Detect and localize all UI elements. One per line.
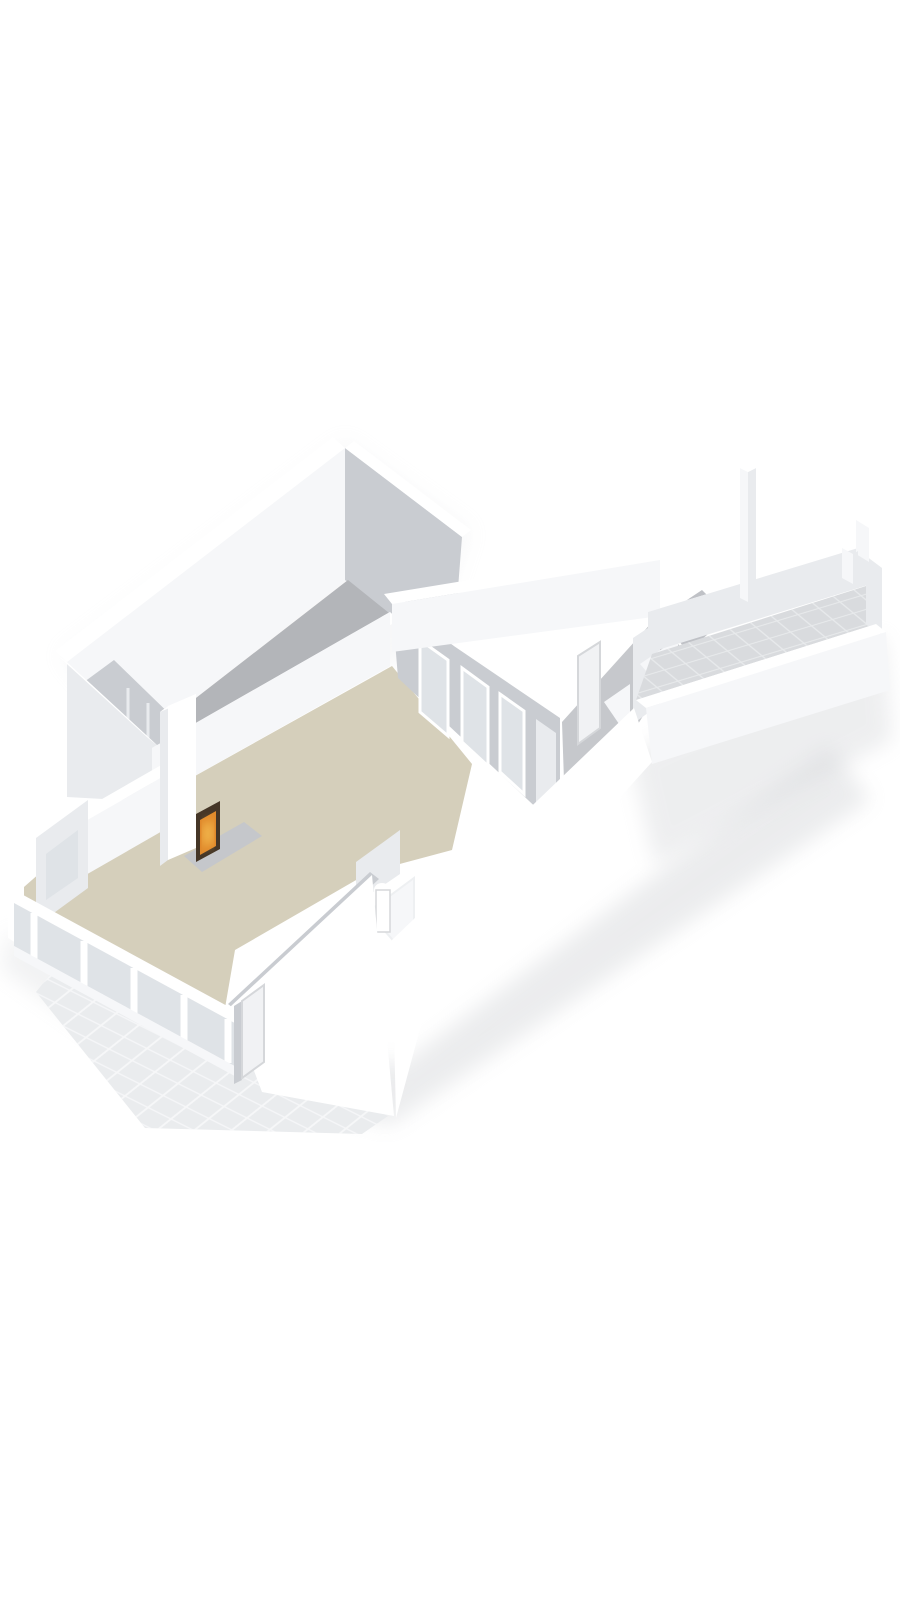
terrace-pillar-side-face bbox=[748, 468, 756, 602]
terrace-post bbox=[842, 548, 853, 584]
terrace-pillar-front-face bbox=[740, 468, 748, 602]
front-door bbox=[242, 985, 264, 1078]
interior-door bbox=[578, 642, 600, 744]
floorplan-canvas bbox=[0, 0, 900, 1600]
window-wall-window-3 bbox=[500, 694, 524, 794]
fireplace-chimney-front bbox=[168, 694, 196, 860]
entrance-side-panel bbox=[302, 1004, 318, 1082]
toilet-fixture bbox=[376, 890, 390, 932]
terrace-end-wall-face bbox=[866, 556, 882, 636]
window-wall-window-2 bbox=[462, 668, 488, 766]
terrace-post-side bbox=[853, 551, 858, 584]
fireplace-chimney-side bbox=[160, 706, 168, 866]
door-recess-reveal bbox=[234, 1001, 242, 1084]
floorplan-3d-render bbox=[0, 0, 900, 1600]
